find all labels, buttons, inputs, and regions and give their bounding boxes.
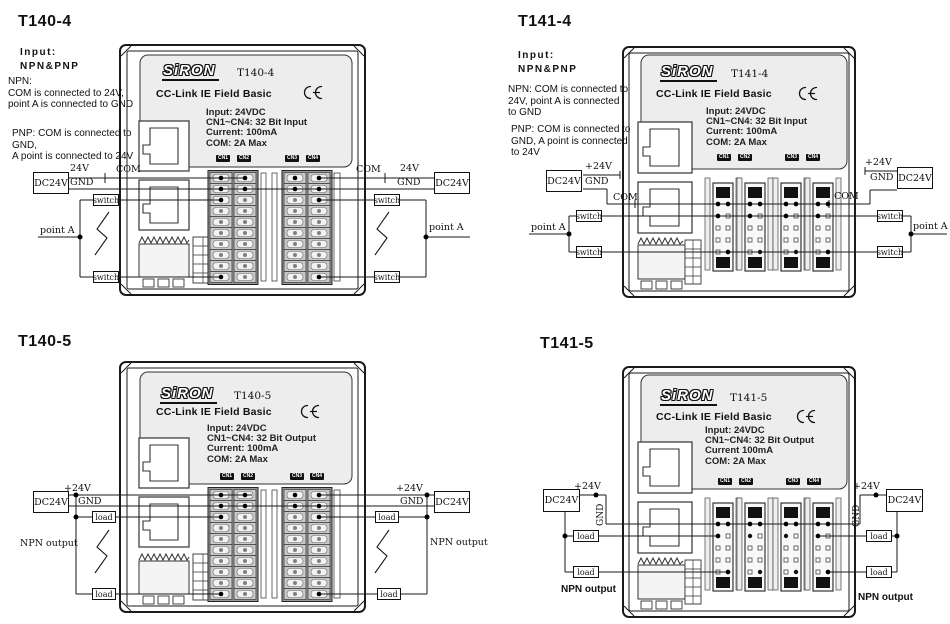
cn2-badge: CN2 [738, 154, 752, 161]
load-box-left-top: load [573, 530, 599, 542]
cn3-badge: CN3 [285, 155, 299, 162]
rail-neg-label-left: GND [78, 496, 102, 507]
power-supply-left: DC24V [33, 172, 69, 194]
power-supply-right: DC24V [897, 167, 933, 189]
cn1-badge: CN1 [216, 155, 230, 162]
input-label: Input: [518, 50, 555, 61]
rail-neg-label-left: GND [70, 177, 94, 188]
spec-text: Input: 24VDC CN1~CN4: 32 Bit Output Curr… [207, 424, 316, 465]
brand-logo: SiRON [660, 63, 717, 82]
cn1-badge: CN1 [718, 478, 732, 485]
switch-symbol-left [95, 212, 109, 255]
spec-text: Input: 24VDC CN1~CN4: 32 Bit Input Curre… [206, 108, 307, 149]
power-supply-left: DC24V [546, 170, 582, 192]
load-box-right-bottom: load [866, 566, 892, 578]
ce-mark-icon [297, 403, 321, 419]
pnp-note: PNP: COM is connected to GND, A point is… [511, 124, 656, 159]
rail-pos-label-right: 24V [400, 163, 419, 174]
power-supply-right: DC24V [434, 491, 470, 513]
switch-box-left-bottom: switch [576, 246, 602, 258]
input-value: NPN&PNP [20, 61, 79, 72]
switch-box-right-bottom: switch [374, 271, 400, 283]
model-number: T140-4 [237, 67, 274, 79]
cn4-badge: CN4 [806, 154, 820, 161]
cn1-badge: CN1 [717, 154, 731, 161]
spec-text: Input: 24VDC CN1~CN4: 32 Bit Output Curr… [705, 426, 814, 467]
brand-logo: SiRON [162, 62, 219, 81]
npn-output-label-left: NPN output [561, 584, 616, 595]
page-title: T140-4 [18, 13, 72, 31]
ce-mark-icon [793, 408, 817, 424]
load-box-left-bottom: load [92, 588, 116, 600]
switch-box-right-top: switch [374, 194, 400, 206]
rail-pos-label-left: +24V [64, 483, 91, 494]
com-label-right: COM [834, 191, 859, 202]
npn-note: NPN: COM is connected to 24V, point A is… [508, 84, 653, 119]
model-number: T141-4 [731, 68, 768, 80]
input-label: Input: [20, 47, 57, 58]
npn-note: NPN: COM is connected to 24V, point A is… [8, 76, 168, 111]
rail-neg-label-right: GND [852, 505, 862, 527]
input-value: NPN&PNP [518, 64, 577, 75]
load-box-right-top: load [375, 511, 399, 523]
brand-logo: SiRON [160, 385, 217, 404]
bus-label: CC-Link IE Field Basic [656, 411, 772, 423]
cn1-badge: CN1 [220, 473, 234, 480]
model-number: T140-5 [234, 390, 271, 402]
brand-logo: SiRON [660, 387, 717, 406]
bus-label: CC-Link IE Field Basic [156, 88, 272, 100]
rail-pos-label-right: +24V [865, 157, 892, 168]
load-box-left-bottom: load [573, 566, 599, 578]
module-body-t141-5 [623, 367, 855, 617]
cn2-badge: CN2 [237, 155, 251, 162]
diagram-t141-5: T141-5 SiRON T141-5 CC-Link IE Field Bas… [475, 312, 950, 624]
power-supply-left: DC24V [33, 491, 69, 513]
model-number: T141-5 [730, 392, 767, 404]
point-a-label-right: point A [913, 221, 948, 232]
npn-output-label-right: NPN output [858, 592, 913, 603]
load-box-right-bottom: load [377, 588, 401, 600]
module-body-t141-4 [623, 47, 855, 297]
rail-neg-label-right: GND [870, 172, 894, 183]
diagram-t141-4: T141-4 Input: NPN&PNP NPN: COM is connec… [475, 0, 950, 312]
page-title: T141-5 [540, 335, 594, 353]
switch-symbol-right [375, 530, 389, 573]
rail-pos-label-right: +24V [396, 483, 423, 494]
power-supply-left: DC24V [543, 489, 580, 512]
diagram-t140-4: T140-4 Input: NPN&PNP NPN: COM is connec… [0, 0, 475, 312]
point-a-label-right: point A [429, 222, 464, 233]
cn4-badge: CN4 [310, 473, 324, 480]
pnp-note: PNP: COM is connected to GND, A point is… [12, 128, 172, 163]
rail-neg-label-right: GND [397, 177, 421, 188]
rail-pos-label-right: +24V [853, 481, 880, 492]
switch-box-left-top: switch [576, 210, 602, 222]
cn3-badge: CN3 [786, 478, 800, 485]
cn3-badge: CN3 [785, 154, 799, 161]
wiring-diagram-sheet: T140-4 Input: NPN&PNP NPN: COM is connec… [0, 0, 950, 624]
page-title: T141-4 [518, 13, 572, 31]
rail-neg-label-right: GND [400, 496, 424, 507]
cn2-badge: CN2 [739, 478, 753, 485]
point-a-label-left: point A [531, 222, 566, 233]
diagram-t140-5: T140-5 SiRON T140-5 CC-Link IE Field Bas… [0, 312, 475, 624]
load-box-right-top: load [866, 530, 892, 542]
rail-pos-label-left: 24V [70, 163, 89, 174]
point-a-label-left: point A [40, 225, 75, 236]
power-supply-right: DC24V [434, 172, 470, 194]
cn3-badge: CN3 [290, 473, 304, 480]
com-label-right: COM [356, 164, 381, 175]
rail-pos-label-left: +24V [585, 161, 612, 172]
rail-pos-label-left: +24V [574, 481, 601, 492]
cn4-badge: CN4 [306, 155, 320, 162]
switch-box-right-top: switch [877, 210, 903, 222]
power-supply-right: DC24V [886, 489, 923, 512]
spec-text: Input: 24VDC CN1~CN4: 32 Bit Input Curre… [706, 107, 807, 148]
diagram-t140-5-artwork [0, 312, 475, 624]
switch-symbol-right [375, 212, 389, 255]
load-box-left-top: load [92, 511, 116, 523]
com-label-left: COM [116, 164, 141, 175]
cn2-badge: CN2 [241, 473, 255, 480]
bus-label: CC-Link IE Field Basic [156, 406, 272, 418]
ce-mark-icon [795, 85, 819, 101]
switch-symbol-left [95, 530, 109, 573]
rail-neg-label-left: GND [585, 176, 609, 187]
switch-box-left-top: switch [93, 194, 119, 206]
switch-box-right-bottom: switch [877, 246, 903, 258]
page-title: T140-5 [18, 333, 72, 351]
npn-output-label-left: NPN output [20, 538, 78, 549]
cn4-badge: CN4 [807, 478, 821, 485]
switch-box-left-bottom: switch [93, 271, 119, 283]
bus-label: CC-Link IE Field Basic [656, 88, 772, 100]
ce-mark-icon [300, 84, 324, 100]
com-label-left: COM [613, 192, 638, 203]
rail-neg-label-left: GND [596, 504, 606, 526]
